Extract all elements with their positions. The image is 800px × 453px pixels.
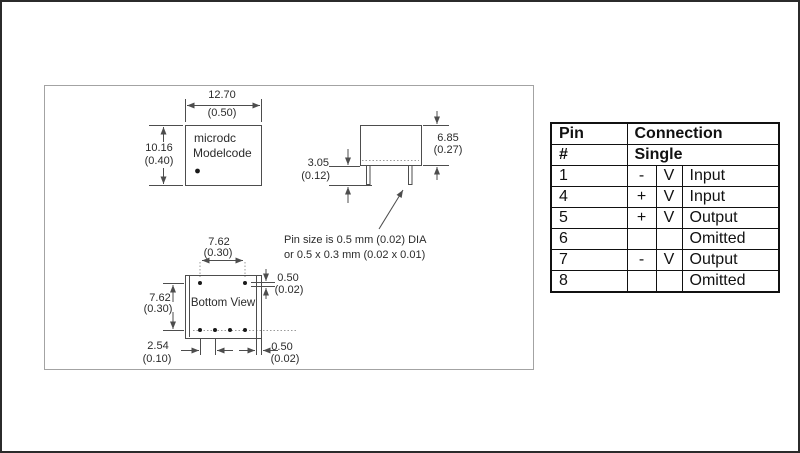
table-header-row: Pin Connection — [551, 123, 779, 145]
pin-sign: + — [627, 208, 656, 229]
table-row: 5 + V Output — [551, 208, 779, 229]
pin-sign — [627, 229, 656, 250]
side-view-body-height-in: (0.27) — [434, 144, 463, 157]
top-view-width-mm: 12.70 — [208, 89, 236, 102]
pin-size-note-line2: or 0.5 x 0.3 mm (0.02 x 0.01) — [284, 249, 425, 262]
pin-number: 8 — [551, 271, 627, 293]
package-label-line2: Modelcode — [193, 147, 252, 160]
bottom-view-label: Bottom View — [191, 297, 255, 310]
pin-sign: - — [627, 166, 656, 187]
header-pin: Pin — [551, 123, 627, 145]
bottom-view-edge-offset-in: (0.02) — [275, 284, 304, 297]
bottom-view-row-span-in: (0.30) — [144, 303, 173, 316]
bottom-view-pin-span-in: (0.30) — [204, 247, 233, 260]
table-row: 1 - V Input — [551, 166, 779, 187]
pin-number: 1 — [551, 166, 627, 187]
pin-unit: V — [656, 208, 682, 229]
pin-unit — [656, 271, 682, 293]
side-view-pin-length-in: (0.12) — [290, 170, 330, 183]
pin-number: 5 — [551, 208, 627, 229]
pin-unit: V — [656, 166, 682, 187]
pin-number: 4 — [551, 187, 627, 208]
pin-connection: Output — [682, 250, 779, 271]
mechanical-drawing — [45, 86, 533, 369]
package-label-line1: microdc — [194, 132, 236, 145]
pin-sign: + — [627, 187, 656, 208]
subheader-number: # — [551, 145, 627, 166]
top-view-width-in: (0.50) — [208, 107, 237, 120]
outline-drawing-panel: 12.70 (0.50) 10.16 (0.40) microdc Modelc… — [44, 85, 534, 370]
top-view-height-in: (0.40) — [144, 155, 175, 168]
side-view-pin-length-mm: 3.05 — [289, 157, 329, 170]
pin-unit: V — [656, 250, 682, 271]
table-row: 7 - V Output — [551, 250, 779, 271]
pin-sign: - — [627, 250, 656, 271]
subheader-single: Single — [627, 145, 779, 166]
table-row: 6 Omitted — [551, 229, 779, 250]
bottom-view-pitch-mm: 2.54 — [147, 340, 168, 353]
pin-connection: Omitted — [682, 229, 779, 250]
page-frame: 12.70 (0.50) 10.16 (0.40) microdc Modelc… — [0, 0, 800, 453]
pin-unit: V — [656, 187, 682, 208]
pin-sign — [627, 271, 656, 293]
pin-connection-table: Pin Connection # Single 1 - V Input 4 + … — [550, 122, 780, 293]
pin-number: 7 — [551, 250, 627, 271]
pin-number: 6 — [551, 229, 627, 250]
pin-connection: Input — [682, 187, 779, 208]
side-view — [329, 111, 449, 229]
pin-connection: Output — [682, 208, 779, 229]
pin-connection: Input — [682, 166, 779, 187]
table-subheader-row: # Single — [551, 145, 779, 166]
pin-connection: Omitted — [682, 271, 779, 293]
table-row: 4 + V Input — [551, 187, 779, 208]
pin-unit — [656, 229, 682, 250]
top-view-height-mm: 10.16 — [144, 142, 174, 155]
bottom-view-side-offset-in: (0.02) — [271, 353, 300, 366]
bottom-view-pitch-in: (0.10) — [143, 353, 172, 366]
table-row: 8 Omitted — [551, 271, 779, 293]
header-connection: Connection — [627, 123, 779, 145]
pin-size-note-line1: Pin size is 0.5 mm (0.02) DIA — [284, 234, 426, 247]
